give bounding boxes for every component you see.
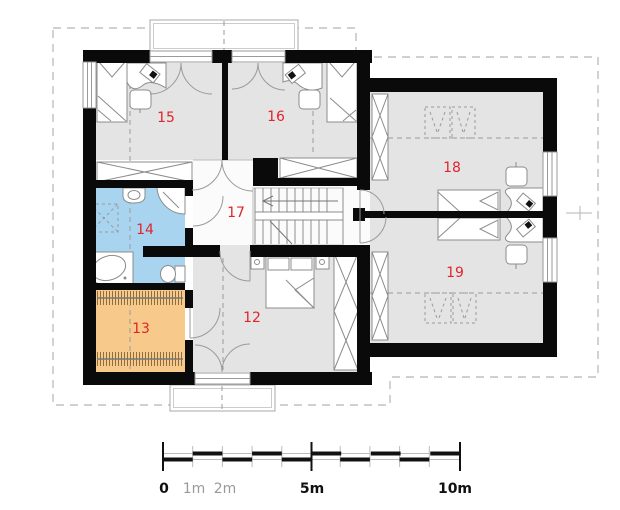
scale-label-1m: 1m	[183, 481, 206, 497]
room-label-12: 12	[243, 310, 261, 326]
room-label-16: 16	[267, 109, 285, 125]
bed-symbol	[438, 218, 500, 240]
wardrobe-symbol	[97, 162, 192, 182]
sink-symbol	[123, 188, 145, 203]
scale-label-10m: 10m	[438, 481, 472, 497]
wardrobe-symbol	[372, 252, 388, 340]
toilet-symbol	[161, 266, 186, 283]
floor-plan-drawing: 15 16 14 17 13 12 18 19	[0, 0, 620, 510]
balcony-top	[150, 20, 298, 51]
floor-plan-page: 15 16 14 17 13 12 18 19	[0, 0, 620, 510]
nightstand-symbol	[316, 256, 329, 269]
wardrobe-symbol	[280, 158, 357, 178]
desk-symbol	[505, 216, 543, 242]
balcony-door-frame-15	[150, 51, 212, 62]
bed-symbol	[327, 60, 357, 122]
room-label-13: 13	[132, 321, 150, 337]
room-label-15: 15	[157, 110, 175, 126]
chair-symbol	[299, 90, 320, 109]
nightstand-symbol	[251, 256, 264, 269]
balcony-door-frame-16	[232, 51, 285, 62]
wardrobe-symbol	[372, 94, 388, 180]
window-room18-right	[543, 152, 557, 196]
staircase	[253, 188, 343, 245]
bed-symbol	[97, 60, 127, 122]
window-room15-left	[83, 62, 96, 108]
scale-bar: 0 1m 2m 5m 10m	[159, 442, 472, 497]
balcony-bottom	[170, 385, 275, 411]
room-label-18: 18	[443, 160, 461, 176]
double-bed-symbol	[266, 256, 314, 308]
roof-ridge-tick	[566, 206, 592, 220]
desk-symbol	[505, 188, 543, 214]
scale-label-0: 0	[159, 481, 169, 497]
bed-symbol	[438, 190, 500, 212]
scale-label-2m: 2m	[214, 481, 237, 497]
wardrobe-symbol	[334, 253, 358, 370]
room-label-14: 14	[136, 222, 154, 238]
window-room19-right	[543, 238, 557, 282]
scale-label-5m: 5m	[300, 481, 324, 497]
room-label-19: 19	[446, 265, 464, 281]
balcony-door-frame-12	[195, 373, 250, 384]
room-label-17: 17	[227, 205, 245, 221]
